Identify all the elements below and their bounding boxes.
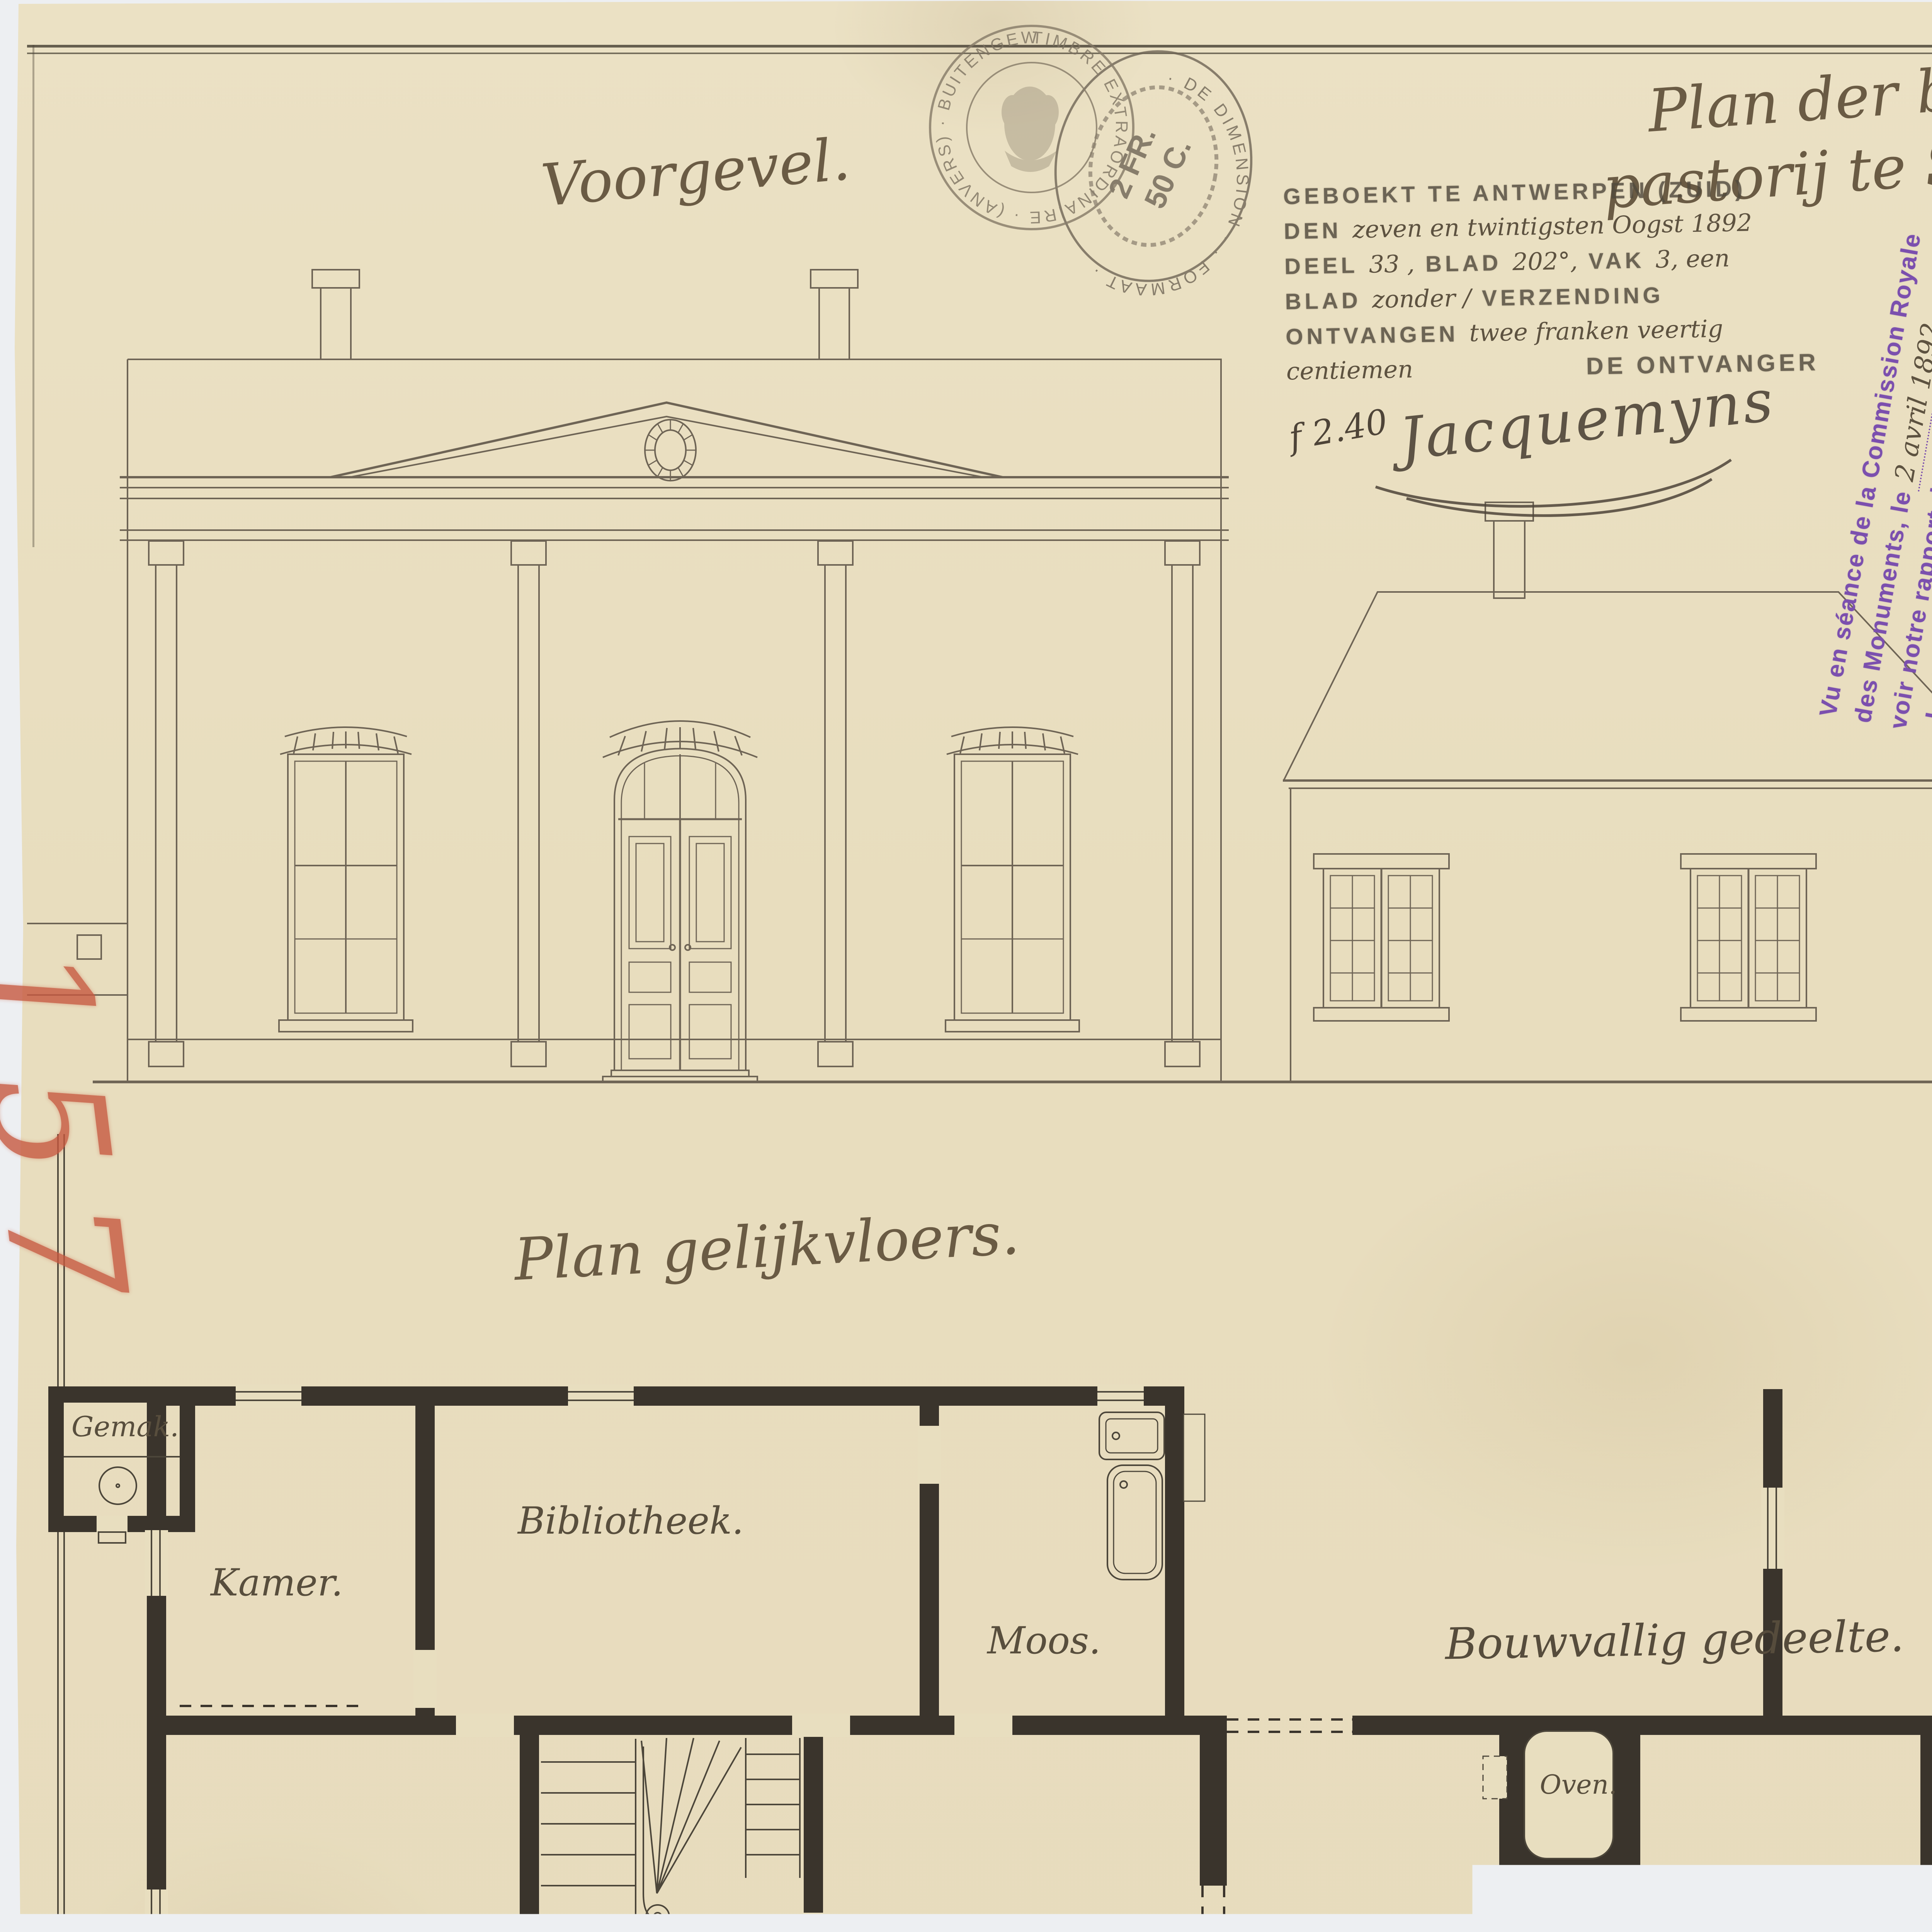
room-label-kamer: Kamer. (211, 1561, 343, 1604)
elevation-entrance-door (603, 721, 757, 1082)
reg-line5-value: twee franken veertig (1469, 315, 1723, 347)
seal-left-coat-of-arms (1002, 87, 1059, 172)
room-label-moos: Moos. (987, 1619, 1101, 1662)
reg-line3-value2: 202°, (1512, 247, 1578, 276)
reg-line4-label1: BLAD (1285, 287, 1361, 315)
reg-line3-value1: 33 , (1369, 250, 1415, 279)
pilasters (149, 541, 1200, 1066)
reg-line3-label3: VAK (1588, 247, 1645, 274)
staircase (541, 1738, 800, 1932)
registration-stamp: GEBOEKT TE ANTWERPEN (ZUID) DEN zeven en… (1283, 176, 1750, 393)
seal-right: · DE DIMENSION · · FORMAAT · 2 FR. 50 C. (1036, 37, 1271, 314)
reg-line5-label: ONTVANGEN (1286, 321, 1459, 350)
elevation-window-right (946, 727, 1079, 1032)
reg-line6-value: centiemen (1286, 355, 1413, 386)
room-label-oven: Oven. (1540, 1770, 1617, 1800)
reg-line3-label1: DEEL (1284, 252, 1359, 279)
reg-line2-label: DEN (1284, 218, 1342, 245)
room-label-bibliotheek: Bibliotheek. (518, 1499, 744, 1543)
reg-line3-label2: BLAD (1425, 250, 1502, 277)
plan-dashed-walls (180, 1706, 1352, 1932)
elevation-annex (1283, 502, 1932, 1082)
reg-line2-value: zeven en twintigsten Oogst 1892 (1352, 208, 1752, 243)
elevation-window-left (279, 727, 413, 1032)
room-label-gemak: Gemak. (71, 1410, 179, 1443)
condition-label: Bouwvallig gedeelte. (1445, 1611, 1905, 1670)
reg-line4-label2: VERZENDING (1482, 282, 1664, 311)
reg-line3-value3: 3, een (1655, 244, 1730, 273)
reg-line4-value: zonder / (1372, 284, 1471, 313)
scanned-drawing-sheet: TIMBRE EXTRAORDINAIRE · (ANVERS) · BUITE… (0, 0, 1932, 1932)
